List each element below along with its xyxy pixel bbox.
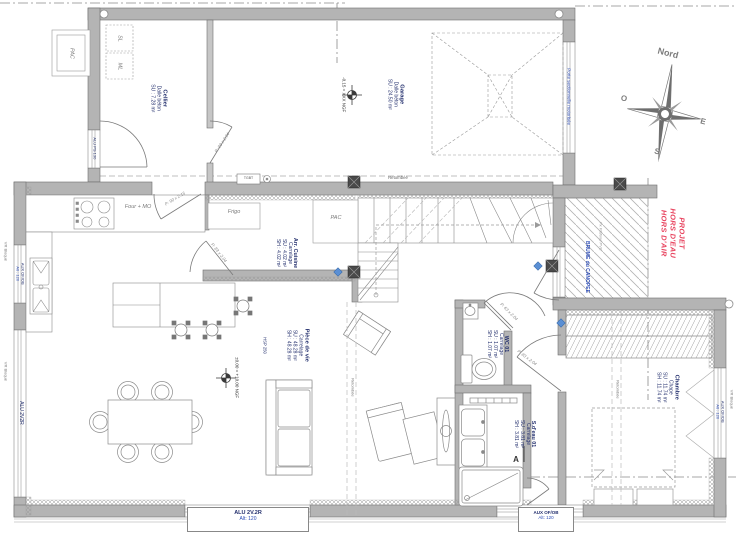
- retombee-label-stairs: Retombée: [382, 175, 414, 180]
- garage-door-label: Porte sectionnelle motorisée: [566, 43, 571, 151]
- window-label-bottom-bath: AUX OF/OB Alt: 120: [518, 507, 574, 532]
- room-label-piece-de-vie: Pièce de vie Carrelage SU : 48.28 m² SH …: [285, 314, 310, 376]
- tv-screen: [443, 410, 450, 452]
- porch-hatch: [565, 198, 648, 298]
- kitchen: [26, 195, 235, 332]
- dining-table: [108, 400, 192, 444]
- room-label-garage: Garage Dalle béton SU : 24.50 m²: [386, 62, 405, 126]
- cellier-entry-door-label: ALU PS 130: [92, 130, 97, 166]
- room-label-sdeau: S.d'eau 01 Carrelage SU : 3.81 m² SH : 3…: [512, 408, 536, 460]
- px-plafond-label: Px Plafond PVC: [598, 214, 603, 258]
- shutter-note-1: VR Bloqué: [3, 230, 8, 272]
- floor-plan: PAC SL ML Cellier Dalle béton SU : 7.28 …: [0, 0, 736, 533]
- window-casement-marks: [686, 370, 714, 458]
- bedroom-furniture: [566, 315, 714, 505]
- section-marker-a: A: [510, 455, 522, 464]
- armchair-1: [343, 311, 390, 355]
- fridge: [208, 203, 260, 229]
- door-cellier-entry: [100, 121, 147, 167]
- closet: [566, 315, 712, 358]
- shutter-note-2: VR Bloqué: [3, 350, 8, 392]
- oven-label: Four + MO: [116, 204, 160, 210]
- garage-door-projection: [432, 33, 563, 155]
- retombee-label-chambre: Retombée: [615, 372, 620, 406]
- sofa: [266, 380, 312, 475]
- pac-interior-label: PAC: [322, 215, 350, 221]
- bottom-edge-lines: [14, 519, 726, 522]
- level-label-living: ±0.00 = +10.00 NGF: [234, 344, 239, 410]
- level-label-garage: -0.15 = XXX NGF: [341, 64, 346, 124]
- level-marker-living: [216, 368, 236, 388]
- toilet-tank: [461, 355, 472, 383]
- nightstand-left: [594, 489, 633, 505]
- washer-sl-label: SL: [116, 28, 123, 48]
- window-label-left-kitchen: AUX OF/OB Alt : 120: [15, 249, 24, 299]
- fridge-label: Frigo: [219, 209, 249, 215]
- tv-unit: [437, 398, 455, 465]
- window-label-bottom-living: ALU 2V.2R Alt: 120: [187, 507, 309, 532]
- washer-ml-label: ML: [116, 56, 123, 76]
- hsp-label: HSP 250: [262, 330, 267, 360]
- pac-interior-closet: [313, 200, 358, 243]
- brume-canopee-label: BRUME du CANOPEE: [583, 231, 589, 303]
- room-label-chambre: Chambre Chape SU : 11.74 m² SH : 11.74 m…: [655, 359, 680, 415]
- dining-set: [90, 382, 203, 463]
- retombee-label-living: Retombée: [350, 370, 355, 404]
- bed: [592, 408, 675, 487]
- vanity: [459, 405, 487, 468]
- pac-exterior-label: PAC: [68, 38, 75, 68]
- project-status-note: PROJET HORS D'EAU HORS D'AIR: [659, 204, 686, 262]
- window-label-left-living: ALU 2V2R: [17, 387, 23, 437]
- shutter-note-3: VR Bloqué: [729, 378, 734, 420]
- room-label-cellier: Cellier Dalle béton SU : 7.28 m²: [149, 68, 168, 128]
- tgbt-label: TGBT: [237, 176, 260, 180]
- floor-plan-drawing: [0, 0, 736, 533]
- nightstand-right: [637, 489, 673, 505]
- window-label-right-chambre: AUX OF/OB Alt : 120: [715, 386, 724, 438]
- room-label-wc: WC 01 Carrelage SU : 1.07 m² SH : 1.07 m…: [485, 319, 509, 369]
- room-label-arr-cuisine: Arr. Cuisine Carrelage SU : 4.02 m² SH :…: [274, 225, 298, 281]
- stairs: [358, 198, 553, 302]
